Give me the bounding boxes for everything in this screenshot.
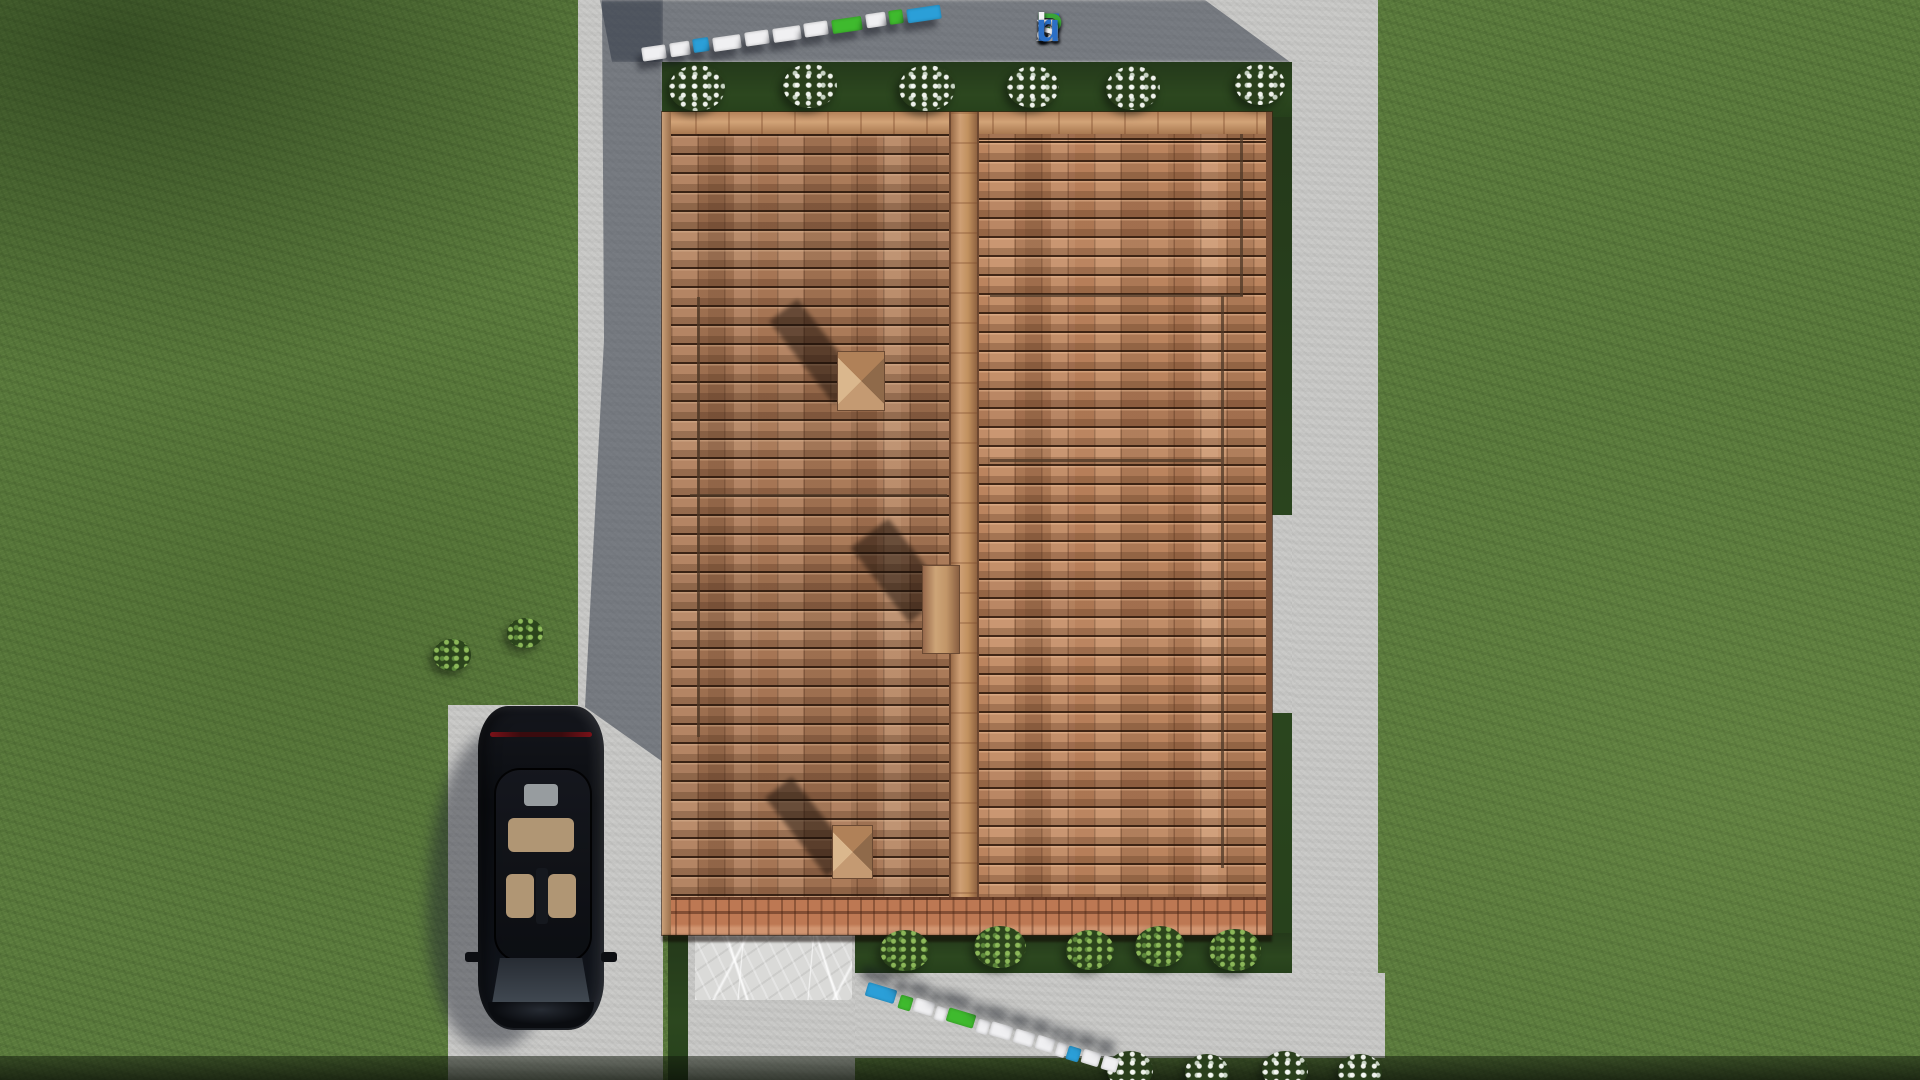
house-roof <box>662 112 1272 935</box>
car-glass-roof <box>494 768 592 962</box>
roof-fascia-left <box>662 112 671 935</box>
logo-letter: u <box>1036 6 1060 50</box>
walkway-connector-right <box>1272 515 1292 713</box>
roof-ridge-center <box>949 112 979 935</box>
car-hood <box>488 1002 594 1028</box>
car-console <box>536 868 548 924</box>
marble-terrace <box>695 935 852 1000</box>
roof-pipe-right-lower <box>1221 296 1224 868</box>
car-taillights <box>490 732 592 737</box>
snow-rail-right-1 <box>990 294 1243 297</box>
bottom-shade-band <box>0 1056 1920 1080</box>
site-plan-render: FixPlans.ru <box>0 0 1920 1080</box>
car-mirror-right <box>601 952 617 962</box>
snow-rail-right-2 <box>990 459 1221 462</box>
roof-pipe-left <box>697 297 700 737</box>
eave-drop-shadow <box>662 935 1272 942</box>
car-rear-seat <box>508 818 574 852</box>
roof-fascia-right <box>1266 112 1272 935</box>
car-windshield <box>492 958 590 1004</box>
path-right <box>1292 62 1378 1058</box>
chimney-2-tall <box>922 565 960 654</box>
car-front-seat-left <box>506 874 534 918</box>
path-bottom <box>855 973 1385 1058</box>
roof-eave <box>662 897 1272 935</box>
black-car <box>478 706 604 1030</box>
chimney-3 <box>833 826 872 878</box>
car-sunroof-panel <box>524 784 558 806</box>
car-front-seat-right <box>548 874 576 918</box>
roof-pipe-right-upper <box>1240 134 1243 296</box>
flowerbed-top <box>662 62 1292 117</box>
snow-rail-left <box>690 494 947 497</box>
chimney-1 <box>838 352 884 410</box>
roof-slope-left <box>671 134 949 897</box>
car-mirror-left <box>465 952 481 962</box>
